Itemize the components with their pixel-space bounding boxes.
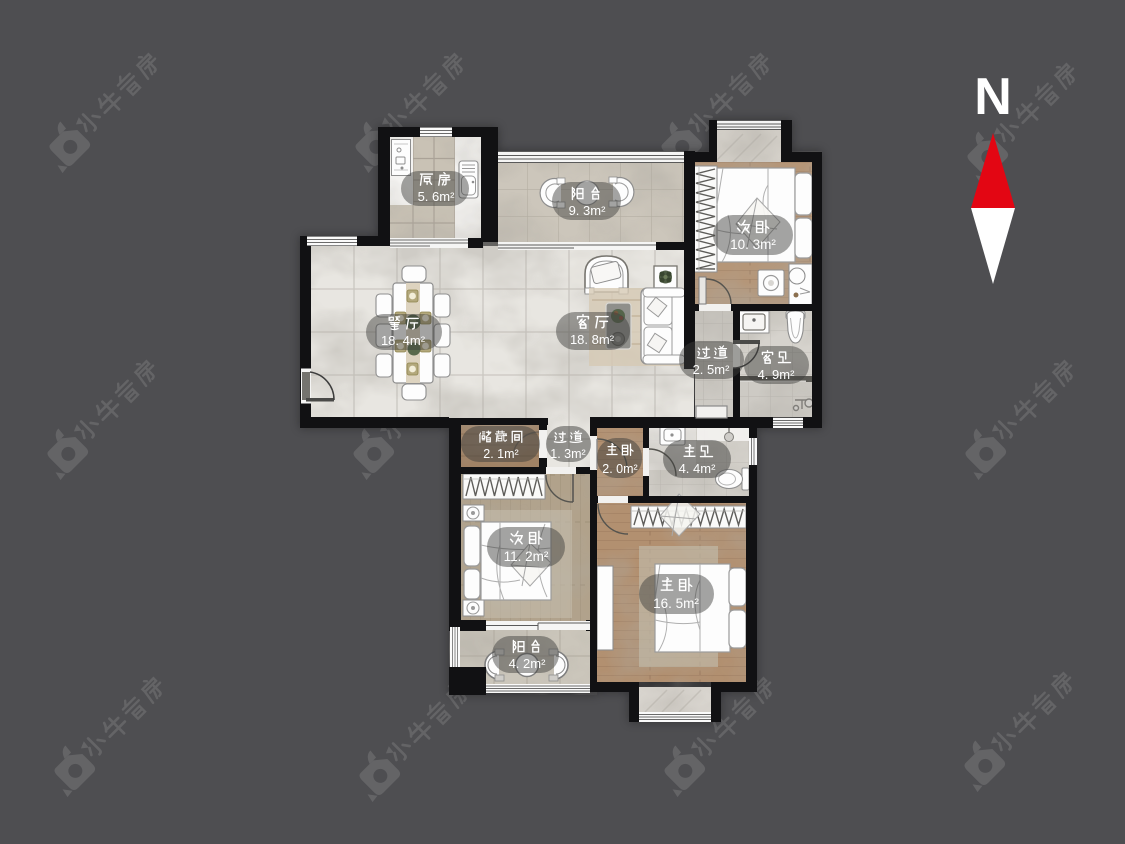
svg-text:2. 0m²: 2. 0m²: [602, 462, 637, 476]
svg-text:N: N: [974, 68, 1012, 126]
svg-text:18. 4m²: 18. 4m²: [381, 333, 426, 348]
svg-text:2. 1m²: 2. 1m²: [483, 447, 518, 461]
svg-text:4. 9m²: 4. 9m²: [758, 367, 796, 382]
svg-text:18. 8m²: 18. 8m²: [570, 332, 615, 347]
svg-text:9. 3m²: 9. 3m²: [569, 203, 607, 218]
svg-text:2. 5m²: 2. 5m²: [693, 362, 731, 377]
svg-text:4. 2m²: 4. 2m²: [509, 656, 547, 671]
svg-text:11. 2m²: 11. 2m²: [504, 549, 549, 564]
svg-text:10. 3m²: 10. 3m²: [730, 237, 776, 252]
svg-text:16. 5m²: 16. 5m²: [653, 596, 699, 611]
svg-text:4. 4m²: 4. 4m²: [679, 461, 717, 476]
svg-text:5. 6m²: 5. 6m²: [418, 189, 456, 204]
svg-text:1. 3m²: 1. 3m²: [550, 447, 585, 461]
